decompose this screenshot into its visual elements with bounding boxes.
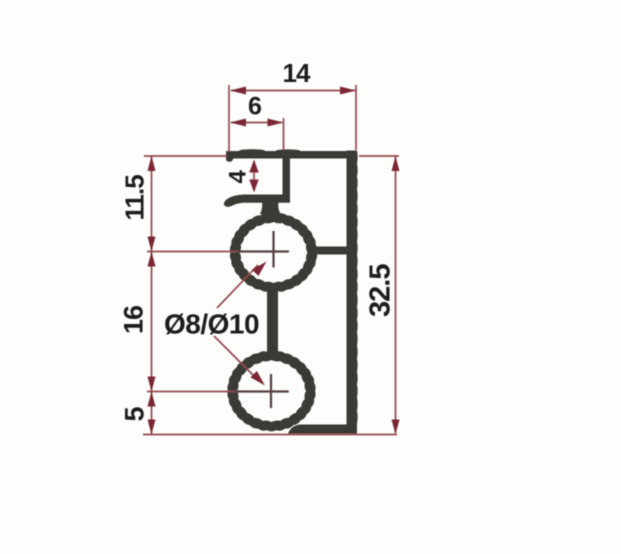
svg-text:5: 5 — [120, 406, 150, 421]
svg-text:4: 4 — [225, 170, 252, 184]
svg-text:14: 14 — [283, 58, 311, 88]
svg-text:6: 6 — [248, 93, 262, 121]
svg-text:32.5: 32.5 — [365, 264, 397, 317]
svg-text:11.5: 11.5 — [120, 175, 150, 221]
svg-text:Ø8/Ø10: Ø8/Ø10 — [164, 309, 259, 340]
svg-text:16: 16 — [119, 305, 149, 334]
